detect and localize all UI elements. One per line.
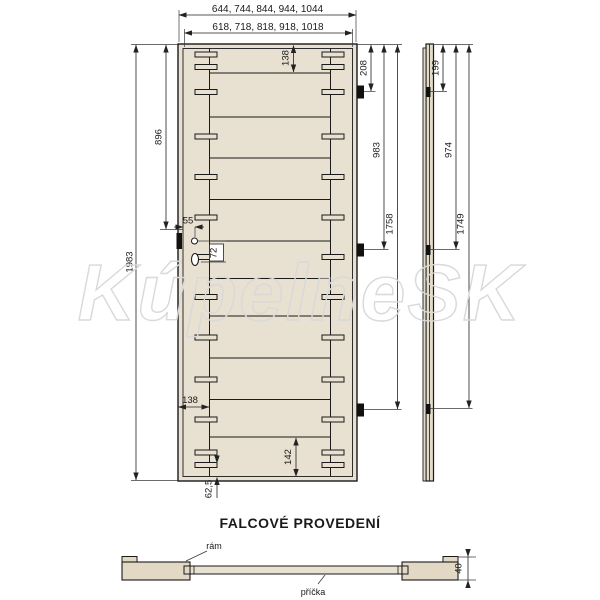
dim-top-rail: 138 [281,50,292,66]
dim-bottom-dowel-offset: 62,5 [204,480,215,499]
section-frame-left [122,557,194,581]
hinge-top-mark [357,86,365,99]
lock-faceplate [177,233,183,249]
section-title: FALCOVÉ PROVEDENÍ [220,515,382,531]
dim-hinge-middle: 983 [372,142,383,158]
dim-side-hinge-middle: 974 [444,142,455,158]
handle-hole [192,238,198,244]
dim-bottom-rail: 142 [283,449,294,465]
dim-thickness: 40 [454,563,465,574]
leader-frame [186,551,207,561]
dim-stile-width: 138 [182,395,198,406]
dim-side-hinge-bottom: 1749 [456,213,467,234]
dim-hinge-top: 208 [359,60,370,76]
technical-drawing-door: 644, 744, 844, 944, 1044 618, 718, 818, … [0,0,600,600]
leader-crossbar [318,575,325,584]
dim-width-inner: 618, 718, 818, 918, 1018 [212,22,324,33]
dim-width-outer: 644, 744, 844, 944, 1044 [212,4,324,15]
dim-hinge-bottom: 1758 [385,213,396,234]
section-panel-strip [190,566,402,574]
extension-lines-side [430,45,473,409]
dim-handle-height: 896 [154,129,165,145]
label-crossbar: příčka [301,587,326,597]
section-view: FALCOVÉ PROVEDENÍ rám příčka [122,515,476,597]
label-frame: rám [206,541,222,551]
dim-handle-backset: 55 [183,216,194,227]
dim-side-hinge-top: 199 [431,60,442,76]
hinge-bottom-mark [357,404,365,417]
section-frame-right [398,557,458,581]
watermark-text: KúpelneSK [78,248,526,337]
